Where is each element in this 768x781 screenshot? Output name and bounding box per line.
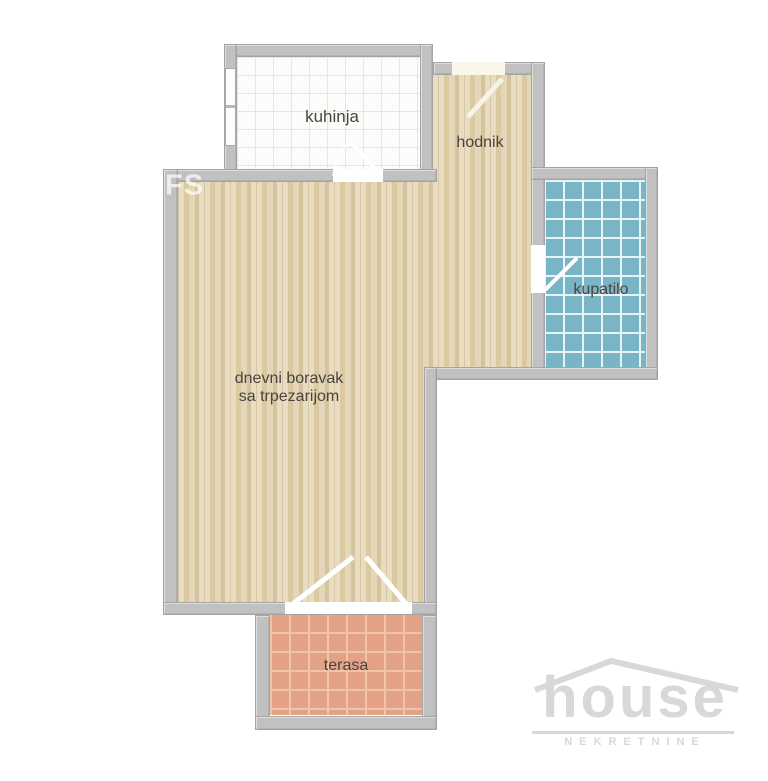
wall-terrace-right [422, 615, 437, 730]
label-kupatilo: kupatilo [573, 281, 628, 299]
wall-living-top [163, 169, 437, 182]
kitchen-window-mullion [226, 105, 235, 108]
watermark-text: .FS [156, 170, 204, 203]
wall-left-outer [163, 169, 178, 615]
agency-logo: house NEKRETNINE [520, 650, 750, 760]
wall-hodnik-right [531, 62, 545, 380]
terrace-door-opening [285, 602, 412, 614]
entry-door-opening [452, 62, 505, 75]
floor-plan: kuhinja hodnik kupatilo dnevni boravak s… [0, 0, 768, 781]
wall-terrace-bottom [255, 716, 437, 730]
label-kuhinja: kuhinja [305, 108, 359, 126]
label-dnevni-boravak-line2: sa trpezarijom [235, 388, 344, 406]
wall-kitchen-right [420, 44, 433, 182]
wall-bathroom-bottom [424, 367, 658, 380]
wall-kitchen-top [224, 44, 433, 57]
wall-terrace-left [255, 615, 270, 730]
wall-living-right [424, 367, 437, 615]
room-kupatilo-floor [544, 180, 645, 367]
label-hodnik: hodnik [456, 134, 503, 152]
kitchen-window [225, 68, 236, 146]
label-dnevni-boravak-line1: dnevni boravak [235, 370, 344, 388]
bathroom-door-opening [531, 245, 545, 293]
label-dnevni-boravak: dnevni boravak sa trpezarijom [235, 370, 344, 406]
logo-title: house [520, 668, 750, 728]
logo-subtitle: NEKRETNINE [520, 736, 750, 748]
wall-bathroom-right [645, 167, 658, 380]
wall-bathroom-top [531, 167, 658, 180]
kitchen-door-opening [333, 169, 383, 182]
label-terasa: terasa [324, 657, 368, 675]
logo-underline [532, 731, 734, 734]
